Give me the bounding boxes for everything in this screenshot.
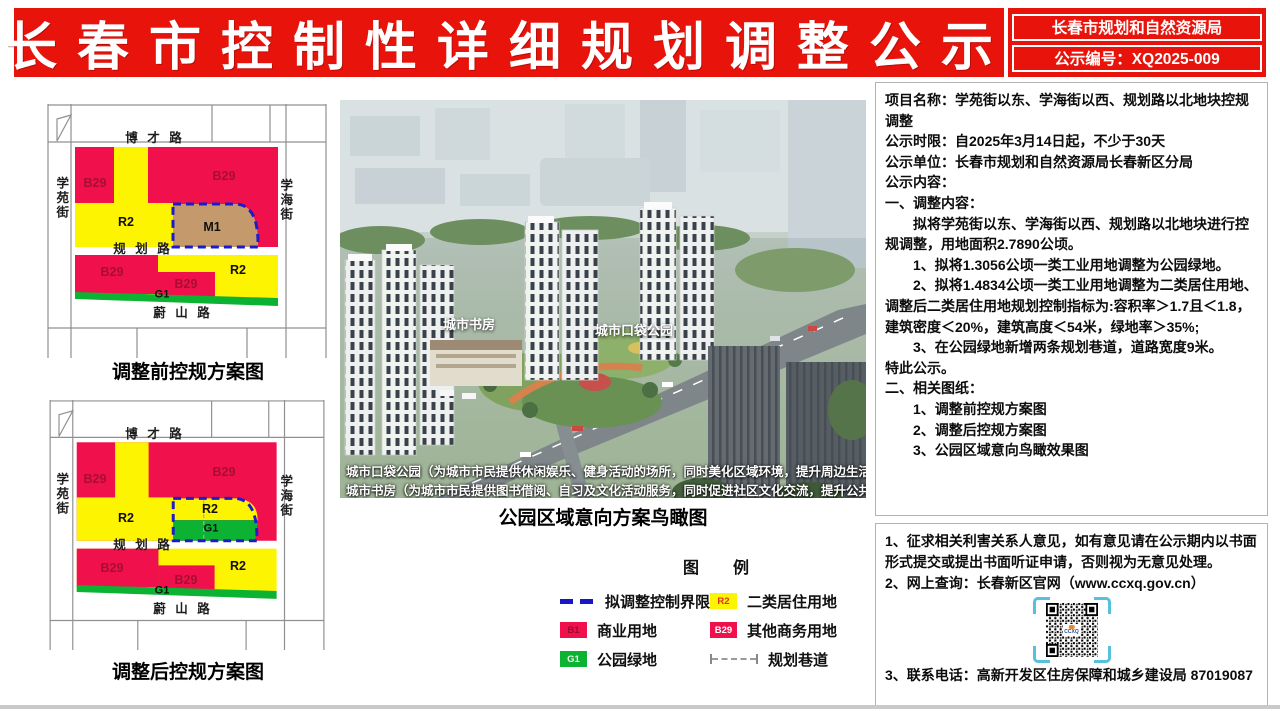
legend: 图 例 拟调整控制界限 R2 二类居住用地 B1 商业用地 B29 其他商务用地… [560,554,872,668]
legend-item-b29: B29 其他商务用地 [710,621,872,639]
legend-label: 其他商务用地 [747,620,837,641]
feedback-line: 1、征求相关利害关系人意见，如有意见请在公示期内以书面形式提交或提出书面听证申请… [885,531,1258,573]
zone-label-b29: B29 [213,170,236,183]
road-label-xueyuan: 学苑街 [55,472,68,516]
zone-label-b29: B29 [175,278,198,291]
notice-line: 特此公示。 [885,358,1258,379]
bottom-divider [0,705,1280,709]
road-label-xuehai: 学海街 [279,474,292,518]
zone-label-r2: R2 [118,512,134,525]
zone-label-g1: G1 [155,586,170,597]
map-before-svg [42,100,334,362]
zone-label-r2: R2 [230,264,246,277]
zone-label-b29: B29 [175,574,198,587]
zone-label-r2-adjusted: R2 [202,503,218,516]
zone-label-b29: B29 [84,473,107,486]
page-title: 长春市控制性详细规划调整公示 [5,5,1013,80]
zone-label-m1: M1 [203,221,220,234]
aerial-render-svg [340,100,866,498]
notice-line: 3、公园区域意向鸟瞰效果图 [885,440,1258,461]
feedback-contact-panel: 1、征求相关利害关系人意见，如有意见请在公示期内以书面形式提交或提出书面听证申请… [875,523,1268,706]
notice-line: 一、调整内容： [885,193,1258,214]
pocket-park-label: 城市口袋公园 [595,320,673,339]
web-query-line: 2、网上查询：长春新区官网（www.ccxq.gov.cn） [885,573,1258,594]
road-label-xuehai: 学海街 [279,178,292,222]
qr-code-image: CCXQ [1046,603,1098,657]
g1-swatch-icon: G1 [560,651,587,667]
zone-label-b29: B29 [101,562,124,575]
notice-content-panel: 项目名称：学苑街以东、学海街以西、规划路以北地块控规调整 公示时限：自2025年… [875,82,1268,516]
legend-title: 图 例 [560,554,872,578]
render-note-line1: 城市口袋公园（为城市市民提供休闲娱乐、健身活动的场所，同时美化区域环境，提升周边… [346,461,866,480]
legend-item-b1: B1 商业用地 [560,621,710,639]
map-after-adjustment: B29 B29 R2 R2 G1 B29 B29 R2 G1 博 才 路 规 划… [42,396,334,658]
contact-line: 3、联系电话：高新开发区住房保障和城乡建设局 87019087 [885,665,1258,686]
qr-code: CCXQ [1033,597,1111,663]
header-agency-box: 长春市规划和自然资源局 公示编号：XQ2025-009 [1008,8,1266,77]
adjust-boundary-line-icon [560,599,595,604]
notice-poster: 长春市控制性详细规划调整公示 长春市规划和自然资源局 公示编号：XQ2025-0… [0,0,1280,711]
planned-lane-line-icon [710,654,758,664]
road-label-bocai: 博 才 路 [125,428,184,441]
legend-item-g1: G1 公园绿地 [560,650,710,668]
legend-item-boundary: 拟调整控制界限 [560,592,710,610]
road-label-guihua: 规 划 路 [113,243,172,256]
notice-line: 2、调整后控规方案图 [885,420,1258,441]
legend-label: 拟调整控制界限 [605,591,710,612]
notice-line: 1、调整前控规方案图 [885,399,1258,420]
legend-label: 商业用地 [597,620,657,641]
zone-label-g1: G1 [155,290,170,301]
b29-swatch-icon: B29 [710,622,737,638]
legend-label: 公园绿地 [597,649,657,670]
render-note-line2: 城市书房（为城市市民提供图书借阅、自习及文化活动服务，同时促进社区文化交流，提升… [346,480,866,498]
map-after-caption: 调整后控规方案图 [42,657,334,684]
library-label: 城市书房 [443,314,495,333]
legend-item-lane: 规划巷道 [710,650,872,668]
road-label-weishan: 蔚 山 路 [153,603,212,616]
render-caption: 公园区域意向方案鸟瞰图 [340,503,866,530]
aerial-render-image: 城市书房 城市口袋公园 城市口袋公园（为城市市民提供休闲娱乐、健身活动的场所，同… [340,100,866,498]
road-label-weishan: 蔚 山 路 [153,307,212,320]
qr-center-logo: CCXQ [1062,624,1080,636]
notice-number: 公示编号：XQ2025-009 [1012,45,1262,72]
title-banner: 长春市控制性详细规划调整公示 [14,8,1004,77]
qr-logo-text: CCXQ [1064,629,1078,635]
b1-swatch-icon: B1 [560,622,587,638]
notice-line: 项目名称：学苑街以东、学海街以西、规划路以北地块控规调整 [885,90,1258,131]
zone-label-b29: B29 [84,177,107,190]
notice-line: 公示时限：自2025年3月14日起，不少于30天 [885,131,1258,152]
zone-label-b29: B29 [213,466,236,479]
road-label-bocai: 博 才 路 [125,132,184,145]
notice-line: 1、拟将1.3056公顷一类工业用地调整为公园绿地。 [885,255,1258,276]
zone-label-r2: R2 [230,560,246,573]
r2-swatch-icon: R2 [710,593,737,609]
agency-name: 长春市规划和自然资源局 [1012,14,1262,41]
notice-line: 2、拟将1.4834公顷一类工业用地调整为二类居住用地、调整后二类居住用地规划控… [885,275,1258,337]
road-label-guihua: 规 划 路 [113,539,172,552]
legend-title-char: 例 [733,554,749,578]
map-before-caption: 调整前控规方案图 [42,357,334,384]
legend-label: 规划巷道 [768,649,828,670]
notice-line: 公示内容： [885,172,1258,193]
legend-item-r2: R2 二类居住用地 [710,592,872,610]
notice-line: 拟将学苑街以东、学海街以西、规划路以北地块进行控规调整，用地面积2.7890公顷… [885,214,1258,255]
notice-line: 公示单位：长春市规划和自然资源局长春新区分局 [885,152,1258,173]
legend-title-char: 图 [683,554,699,578]
road-label-xueyuan: 学苑街 [55,176,68,220]
map-before-adjustment: B29 B29 R2 M1 B29 B29 R2 G1 博 才 路 规 划 路 … [42,100,334,362]
zone-label-r2: R2 [118,216,134,229]
legend-label: 二类居住用地 [747,591,837,612]
zone-label-b29: B29 [101,266,124,279]
zone-label-g1-adjusted: G1 [204,524,219,535]
notice-line: 3、在公园绿地新增两条规划巷道，道路宽度9米。 [885,337,1258,358]
notice-line: 二、相关图纸： [885,378,1258,399]
